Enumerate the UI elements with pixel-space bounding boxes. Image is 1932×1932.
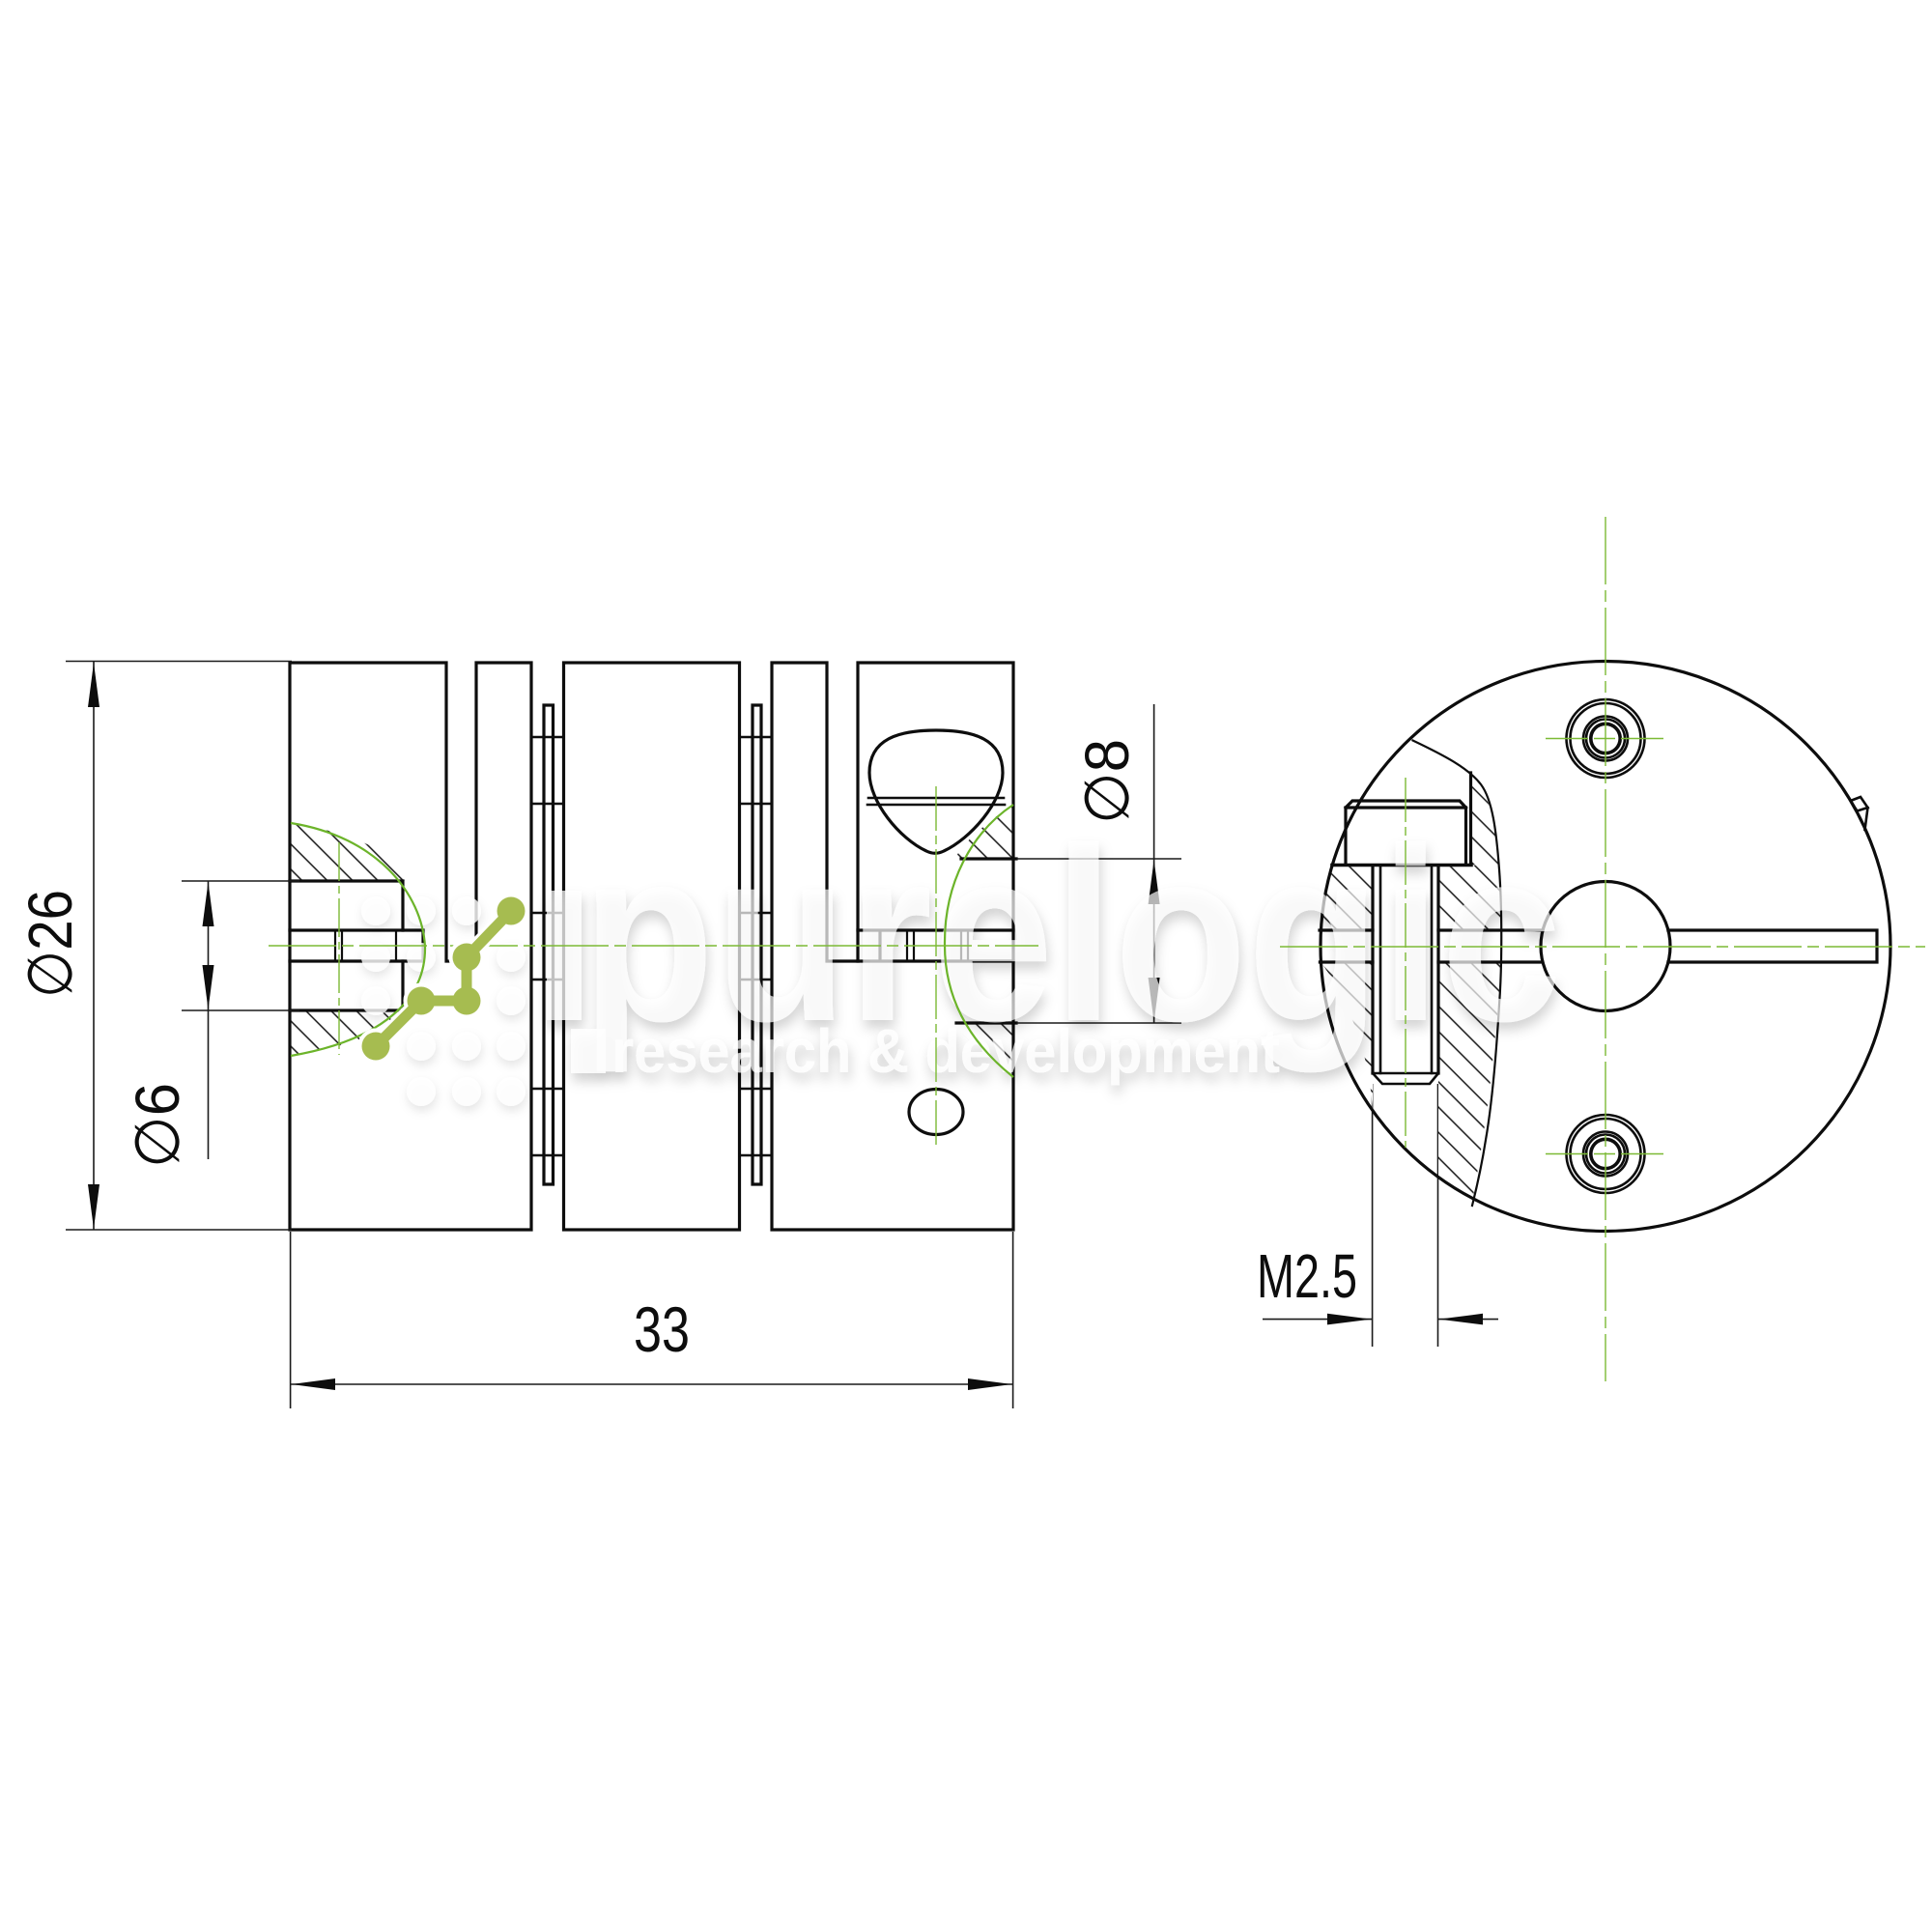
svg-text:research & development: research & development (611, 1016, 1280, 1086)
svg-text:M2.5: M2.5 (1257, 1241, 1357, 1311)
svg-text:∅6: ∅6 (123, 1083, 192, 1168)
svg-text:∅26: ∅26 (15, 890, 85, 998)
svg-text:33: 33 (634, 1293, 690, 1365)
